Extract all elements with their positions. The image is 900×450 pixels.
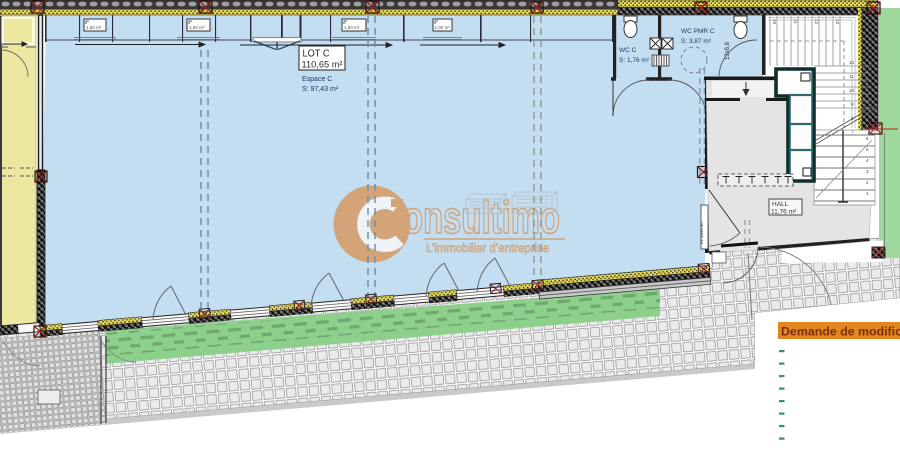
svg-text:1,50 m²: 1,50 m²: [86, 25, 102, 30]
svg-text:12: 12: [814, 19, 819, 25]
svg-text:11: 11: [849, 74, 854, 79]
svg-text:Demande de modific: Demande de modific: [781, 327, 900, 339]
svg-text:S: 97,43 m²: S: 97,43 m²: [302, 86, 339, 93]
svg-text:LOT C: LOT C: [303, 49, 330, 60]
svg-text:Espace C: Espace C: [302, 76, 332, 83]
svg-text:10: 10: [772, 19, 777, 25]
svg-text:13: 13: [835, 19, 840, 25]
svg-text:S: 3,87 m²: S: 3,87 m²: [681, 38, 712, 45]
svg-text:1,50 m²: 1,50 m²: [189, 25, 205, 30]
svg-text:12: 12: [849, 60, 855, 65]
svg-text:11,76 m²: 11,76 m²: [771, 209, 797, 216]
svg-text:10: 10: [849, 88, 855, 93]
svg-text:onsultimo: onsultimo: [403, 192, 560, 243]
svg-text:110,65 m²: 110,65 m²: [302, 60, 343, 71]
svg-text:1,00 m²: 1,00 m²: [435, 25, 451, 30]
svg-text:HALL: HALL: [772, 201, 789, 208]
svg-text:WC C: WC C: [619, 47, 637, 54]
svg-text:11: 11: [793, 19, 798, 24]
svg-text:S: 1,76 m²: S: 1,76 m²: [619, 57, 650, 64]
svg-text:WC PMR C: WC PMR C: [681, 28, 715, 35]
svg-text:1,50 m²: 1,50 m²: [344, 25, 360, 30]
svg-text:L’immobilier d’entreprise: L’immobilier d’entreprise: [426, 243, 549, 255]
svg-text:EL 03HB 9u: EL 03HB 9u: [699, 223, 704, 244]
